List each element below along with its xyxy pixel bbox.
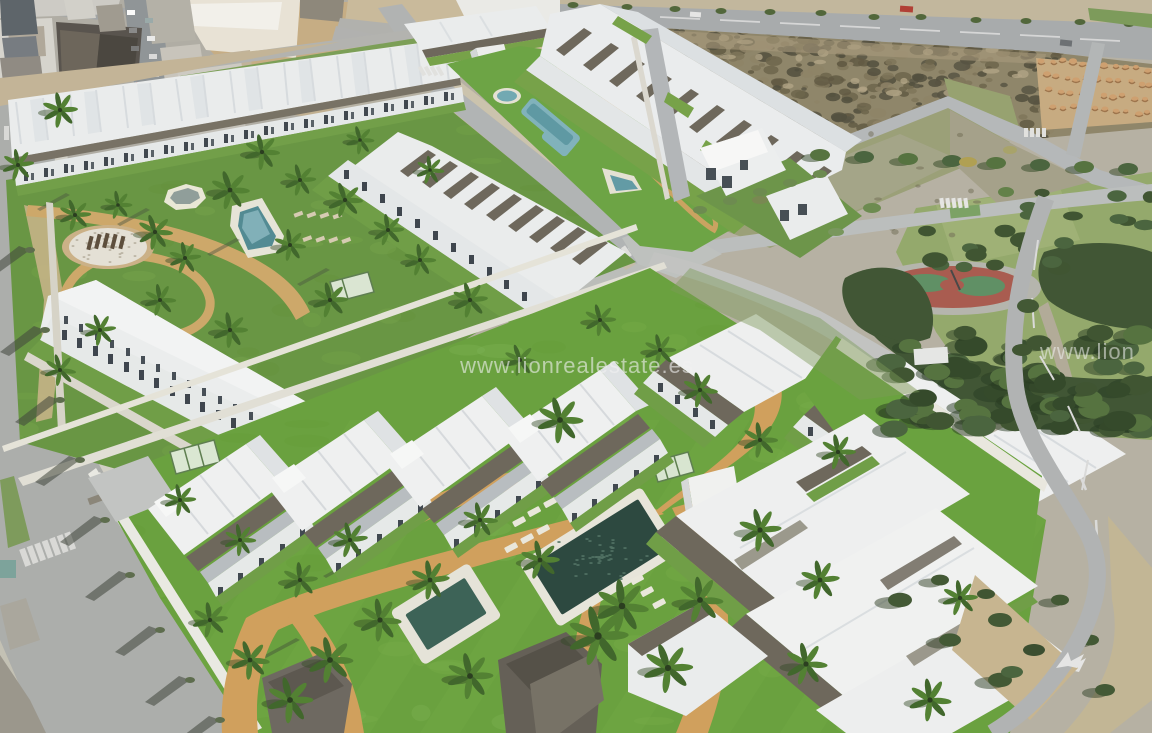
svg-text:www.lion: www.lion: [1039, 339, 1135, 364]
svg-text:www.lionrealestate.es: www.lionrealestate.es: [459, 353, 694, 378]
